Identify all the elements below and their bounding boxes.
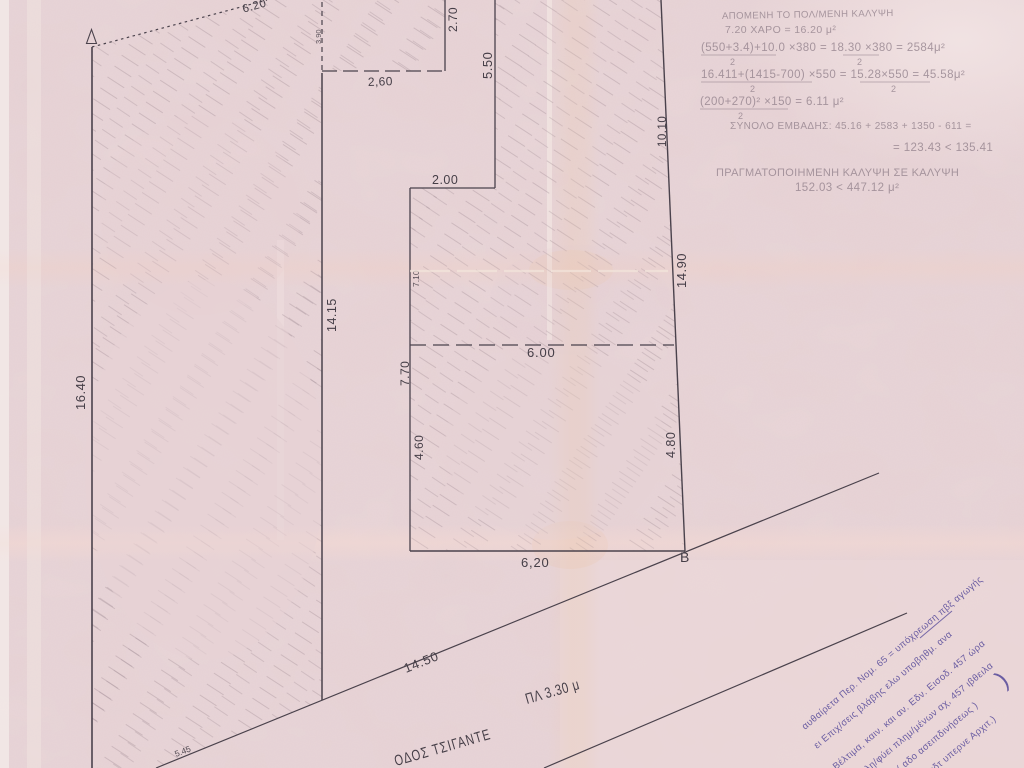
svg-text:2: 2: [891, 84, 896, 94]
svg-text:4.60: 4.60: [412, 435, 426, 460]
svg-text:2: 2: [730, 57, 735, 67]
svg-text:6,20: 6,20: [521, 555, 550, 570]
svg-text:2.70: 2.70: [446, 7, 460, 32]
svg-text:7.70: 7.70: [398, 361, 412, 386]
svg-text:14.90: 14.90: [674, 253, 689, 288]
svg-text:6.00: 6.00: [527, 345, 556, 360]
svg-text:14.15: 14.15: [325, 298, 339, 332]
svg-text:(200+270)² ×150 = 6.11 μ²: (200+270)² ×150 = 6.11 μ²: [700, 96, 844, 108]
svg-text:3.90: 3.90: [314, 29, 323, 44]
svg-text:16.40: 16.40: [73, 375, 88, 410]
svg-text:= 123.43 < 135.41: = 123.43 < 135.41: [893, 142, 993, 154]
svg-text:2: 2: [750, 84, 755, 94]
svg-text:2: 2: [738, 111, 743, 121]
svg-text:ΠΡΑΓΜΑΤΟΠΟΙΗΜΕΝΗ ΚΑΛΥΨΗ ΣΕ ΚΑΛ: ΠΡΑΓΜΑΤΟΠΟΙΗΜΕΝΗ ΚΑΛΥΨΗ ΣΕ ΚΑΛΥΨΗ: [716, 167, 959, 179]
svg-text:2.00: 2.00: [432, 173, 458, 187]
svg-text:ΣΥΝΟΛΟ ΕΜΒΑΔΗΣ: 45.16 + 2583 +: ΣΥΝΟΛΟ ΕΜΒΑΔΗΣ: 45.16 + 2583 + 1350 - 61…: [730, 121, 972, 132]
svg-text:5.50: 5.50: [480, 52, 495, 79]
svg-text:16.411+(1415-700) ×550 = 15.28: 16.411+(1415-700) ×550 = 15.28×550 = 45.…: [701, 69, 965, 81]
svg-text:2: 2: [857, 57, 862, 67]
svg-text:7.10: 7.10: [411, 270, 421, 287]
svg-text:10.10: 10.10: [657, 116, 669, 147]
svg-text:152.03 < 447.12 μ²: 152.03 < 447.12 μ²: [795, 182, 899, 194]
svg-text:2,60: 2,60: [368, 74, 393, 89]
svg-text:4.80: 4.80: [664, 432, 678, 458]
svg-text:(550+3.4)+10.0 ×380 = 18.30 ×3: (550+3.4)+10.0 ×380 = 18.30 ×380 = 2584μ…: [701, 42, 945, 54]
svg-text:7.20 ΧΑΡΟ = 16.20 μ²: 7.20 ΧΑΡΟ = 16.20 μ²: [725, 24, 836, 36]
